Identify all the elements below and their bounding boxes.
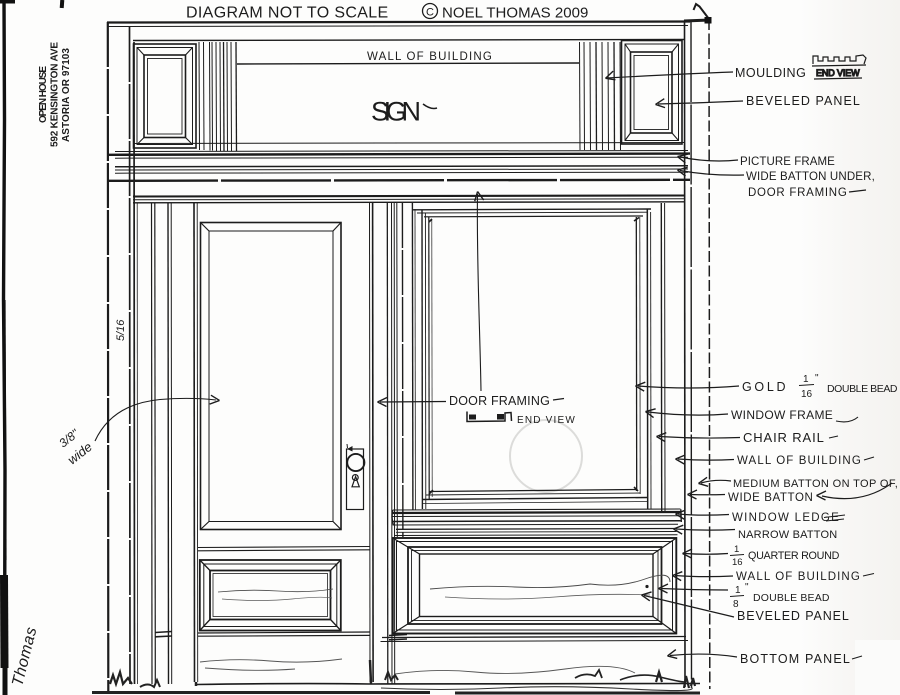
svg-text:WIDE BATTON: WIDE BATTON — [728, 492, 814, 504]
svg-text:DOUBLE BEAD: DOUBLE BEAD — [827, 383, 898, 395]
svg-text:WIDE BATTON UNDER,: WIDE BATTON UNDER, — [746, 171, 876, 183]
svg-text:1: 1 — [735, 585, 741, 596]
svg-text:END VIEW: END VIEW — [816, 68, 860, 78]
svg-text:MOULDING: MOULDING — [735, 66, 807, 80]
svg-text:BOTTOM PANEL: BOTTOM PANEL — [740, 652, 851, 666]
svg-text:NOEL THOMAS 2009: NOEL THOMAS 2009 — [442, 5, 589, 22]
svg-text:WINDOW LEDGE: WINDOW LEDGE — [732, 512, 840, 524]
svg-text:DIAGRAM NOT TO SCALE: DIAGRAM NOT TO SCALE — [186, 5, 389, 22]
svg-text:": " — [815, 373, 819, 384]
svg-text:ASTORIA OR 97103: ASTORIA OR 97103 — [61, 48, 72, 142]
svg-text:NARROW BATTON: NARROW BATTON — [738, 529, 838, 541]
svg-text:592 KENSINGTON AVE: 592 KENSINGTON AVE — [50, 42, 61, 147]
svg-text:16: 16 — [732, 557, 743, 568]
svg-text:WALL OF BUILDING: WALL OF BUILDING — [367, 51, 493, 63]
svg-text:GOLD: GOLD — [742, 380, 788, 394]
svg-text:1: 1 — [803, 374, 809, 385]
svg-text:PICTURE FRAME: PICTURE FRAME — [740, 156, 836, 168]
svg-text:WALL OF BUILDING: WALL OF BUILDING — [736, 571, 861, 583]
svg-text:WALL OF BUILDING: WALL OF BUILDING — [737, 455, 862, 467]
svg-text:CHAIR RAIL: CHAIR RAIL — [743, 430, 825, 445]
svg-text:QUARTER ROUND: QUARTER ROUND — [748, 550, 840, 562]
svg-text:END VIEW: END VIEW — [517, 415, 576, 426]
svg-text:C: C — [426, 7, 434, 19]
svg-text:5/16: 5/16 — [115, 319, 127, 341]
svg-text:16: 16 — [801, 389, 813, 400]
svg-text:OPEN HOUSE: OPEN HOUSE — [38, 66, 49, 123]
svg-text:BEVELED PANEL: BEVELED PANEL — [737, 609, 850, 623]
svg-text:1: 1 — [734, 544, 739, 555]
svg-text:SIGN: SIGN — [371, 97, 424, 127]
svg-text:BEVELED PANEL: BEVELED PANEL — [746, 94, 861, 108]
svg-text:DOUBLE BEAD: DOUBLE BEAD — [753, 592, 830, 604]
svg-text:WINDOW FRAME: WINDOW FRAME — [731, 408, 834, 422]
svg-text:MEDIUM BATTON ON TOP OF,: MEDIUM BATTON ON TOP OF, — [733, 478, 899, 490]
svg-text:DOOR FRAMING: DOOR FRAMING — [449, 394, 551, 408]
svg-text:DOOR FRAMING: DOOR FRAMING — [748, 187, 848, 199]
svg-text:": " — [745, 582, 749, 593]
